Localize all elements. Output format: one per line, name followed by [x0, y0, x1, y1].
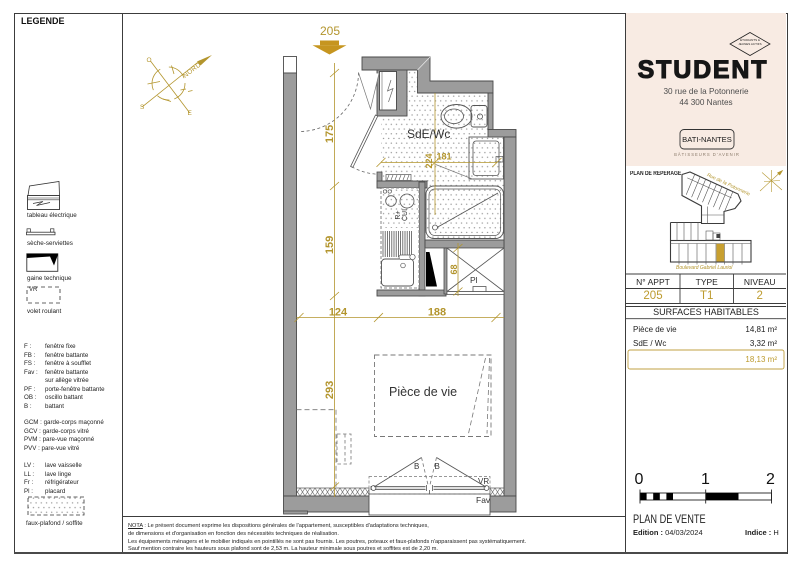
svg-text:124: 124 [329, 307, 348, 319]
svg-text:181: 181 [436, 152, 451, 162]
svg-text:224: 224 [424, 153, 434, 168]
svg-text:68: 68 [449, 264, 459, 274]
svg-text:175: 175 [324, 125, 336, 143]
svg-text:159: 159 [324, 236, 336, 254]
svg-text:188: 188 [428, 307, 446, 319]
svg-text:293: 293 [324, 381, 336, 399]
